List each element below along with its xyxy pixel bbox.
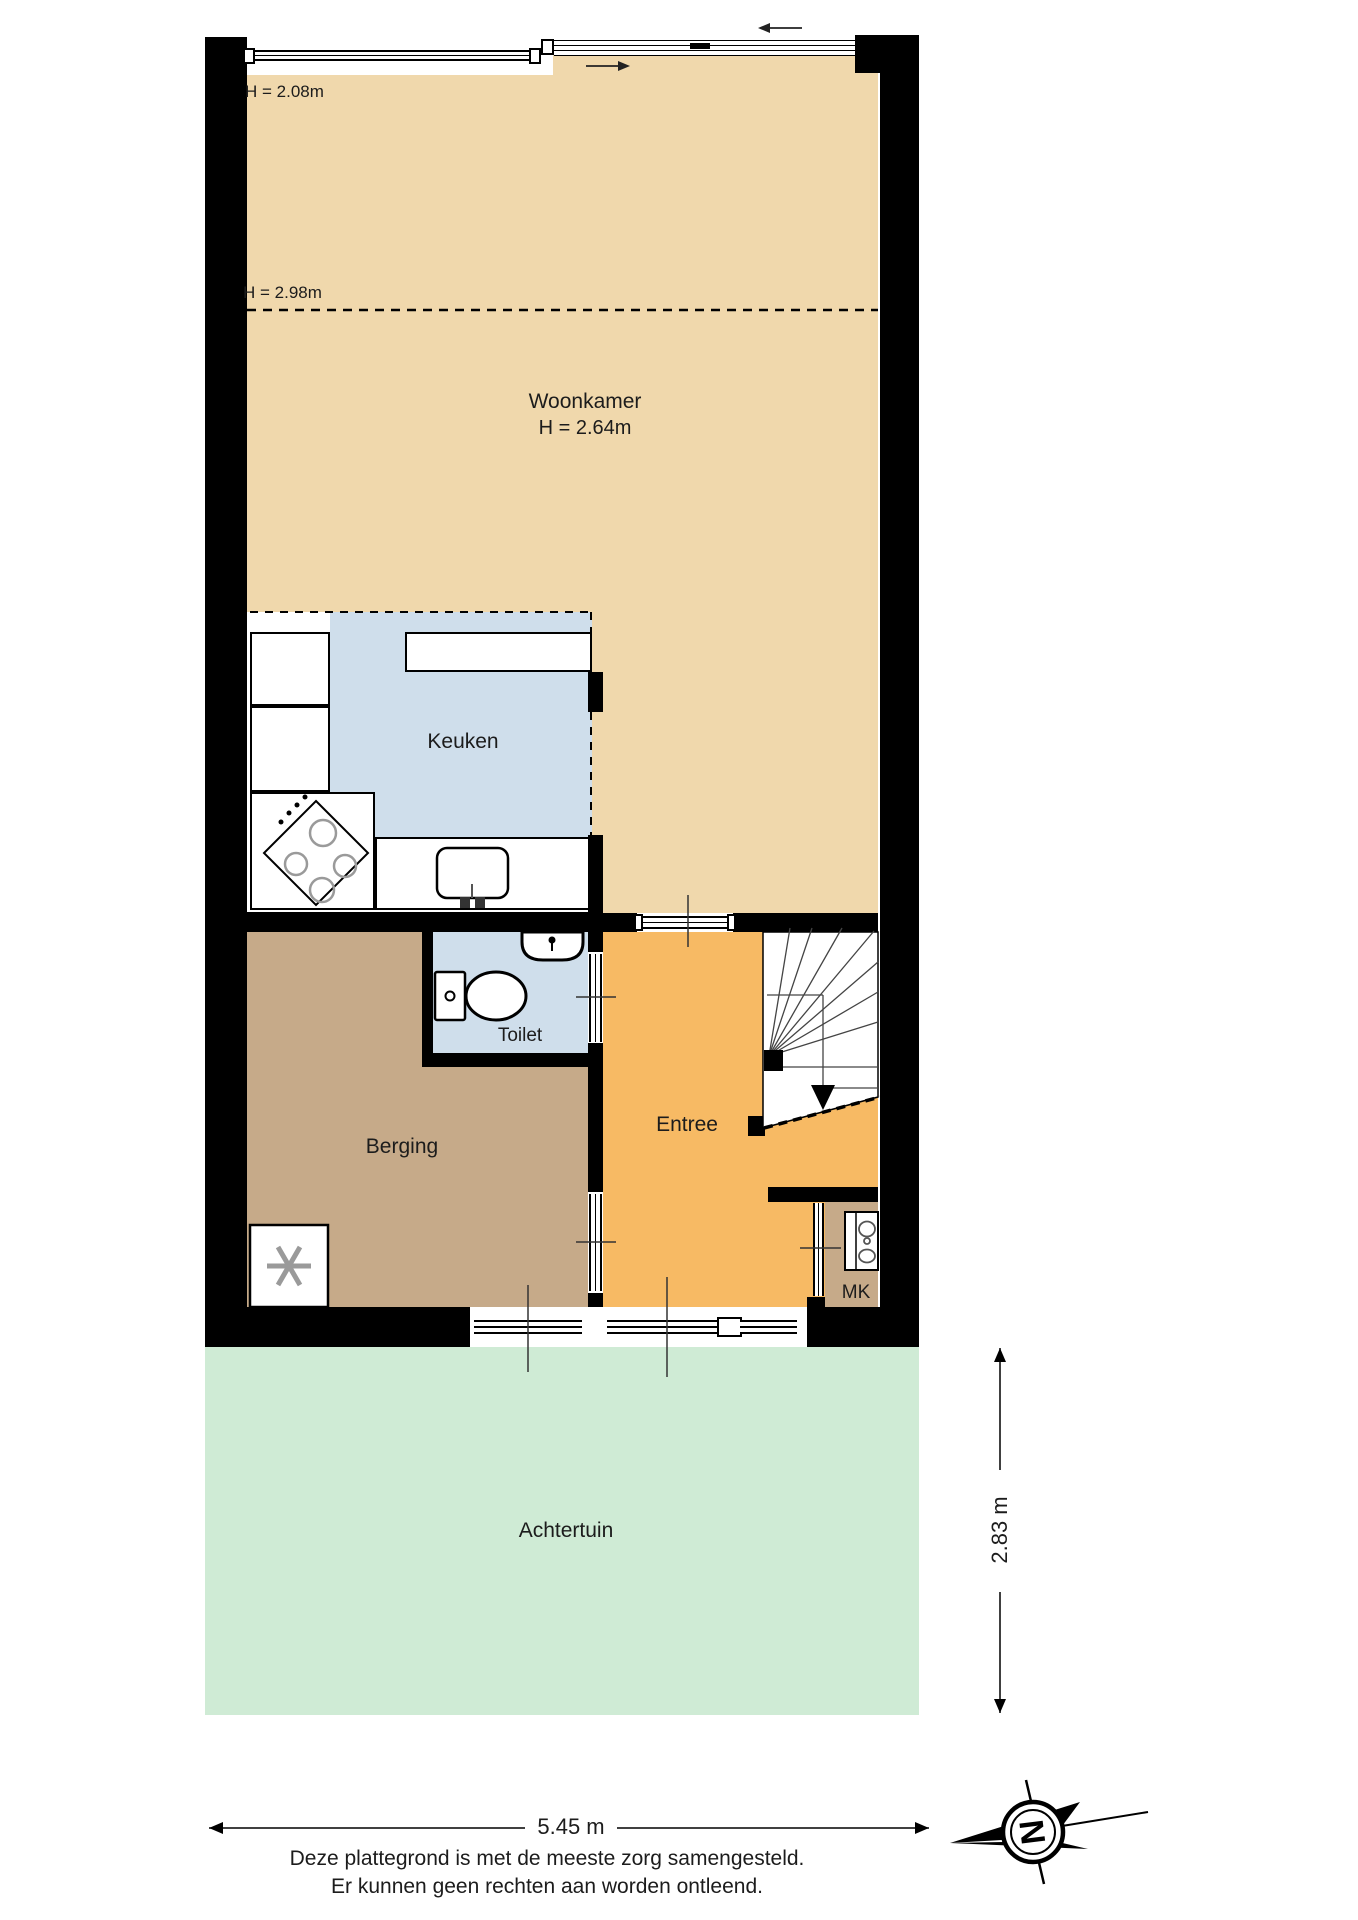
front-door bbox=[607, 1320, 718, 1334]
mk-door-post bbox=[807, 1297, 825, 1313]
toilet-wall-left bbox=[422, 932, 433, 1067]
disclaimer-line2: Er kunnen geen rechten aan worden ontlee… bbox=[331, 1875, 763, 1899]
sliding-door-handle bbox=[690, 43, 710, 49]
front-door-post bbox=[717, 1317, 742, 1337]
woonkamer-height-label: H = 2.64m bbox=[539, 417, 632, 440]
wall-kitchen-stub-upper bbox=[588, 672, 603, 712]
room-label-berging: Berging bbox=[366, 1135, 438, 1159]
hall-window-post-left bbox=[634, 914, 643, 931]
compass-icon: N bbox=[950, 1780, 1148, 1884]
stair-bottom-post bbox=[748, 1116, 765, 1136]
exterior-wall-left bbox=[205, 37, 247, 1347]
front-sidelight bbox=[740, 1320, 797, 1334]
wall-under-stairs bbox=[768, 1187, 878, 1202]
wall-living-hall-left bbox=[603, 913, 637, 932]
livingroom-area-right bbox=[553, 55, 878, 913]
ceiling-height-high-label: H = 2.98m bbox=[243, 283, 322, 303]
slider-post bbox=[541, 39, 554, 55]
hall-window bbox=[641, 916, 731, 929]
disclaimer-line1: Deze plattegrond is met de meeste zorg s… bbox=[290, 1847, 805, 1871]
kitchen-cabinet-lower bbox=[250, 706, 330, 792]
top-window-post-right bbox=[529, 48, 541, 64]
storage-back-door bbox=[474, 1320, 582, 1334]
wall-kitchen-hall bbox=[247, 912, 603, 932]
mk-door bbox=[813, 1203, 824, 1296]
garden-depth-dimension-label: 2.83 m bbox=[987, 1496, 1013, 1563]
floorplan-page: { "rooms": { "woonkamer": { "label": "Wo… bbox=[0, 0, 1358, 1920]
kitchen-counter-top-strip bbox=[405, 632, 592, 672]
kitchen-cabinet-upper bbox=[250, 632, 330, 706]
toilet-door bbox=[589, 954, 602, 1042]
room-label-achtertuin: Achtertuin bbox=[519, 1519, 614, 1543]
room-label-entree: Entree bbox=[656, 1113, 718, 1137]
kitchen-sink-counter bbox=[375, 837, 592, 910]
exterior-wall-bottom-left bbox=[205, 1307, 470, 1347]
exterior-wall-bottom-right bbox=[807, 1307, 919, 1347]
wall-living-hall-right bbox=[733, 913, 878, 932]
kitchen-corner-counter bbox=[250, 792, 375, 910]
storage-door bbox=[589, 1194, 602, 1291]
ceiling-height-low-label: H = 2.08m bbox=[245, 82, 324, 102]
hall-window-post-right bbox=[727, 914, 736, 931]
sliding-door-track-lower bbox=[554, 50, 855, 56]
top-window bbox=[247, 50, 533, 61]
exterior-wall-right bbox=[880, 73, 919, 1347]
width-dimension-label: 5.45 m bbox=[537, 1814, 604, 1840]
compass-letter: N bbox=[1013, 1817, 1054, 1846]
exterior-wall-right-top-block bbox=[855, 35, 919, 73]
top-window-post-left bbox=[243, 48, 255, 64]
slide-arrow-left bbox=[758, 23, 802, 33]
room-label-woonkamer: Woonkamer bbox=[529, 390, 642, 414]
room-label-mk: MK bbox=[842, 1282, 871, 1304]
room-label-toilet: Toilet bbox=[498, 1025, 542, 1047]
room-label-keuken: Keuken bbox=[427, 730, 498, 754]
wall-kitchen-stub-lower bbox=[588, 835, 603, 912]
toilet-wall-bottom bbox=[422, 1053, 603, 1067]
